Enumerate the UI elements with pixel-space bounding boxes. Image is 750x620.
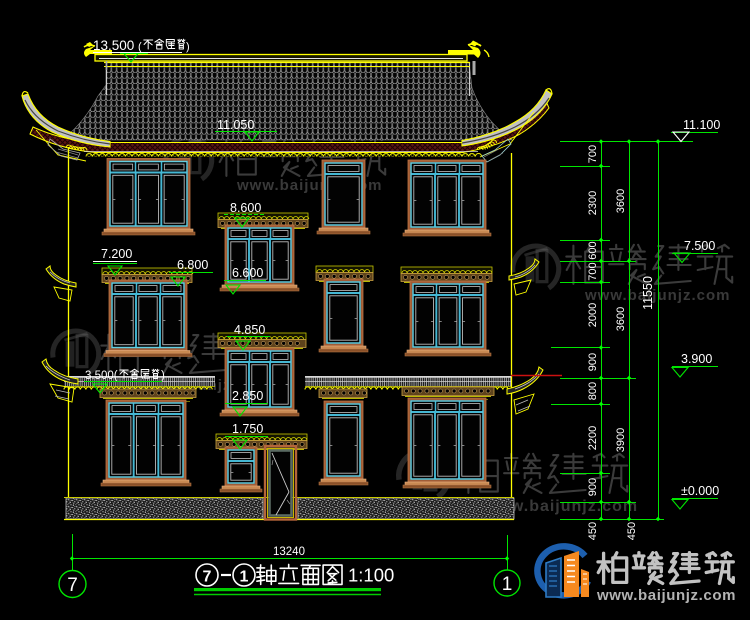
svg-text:(: ( [138, 41, 142, 53]
svg-text:600: 600 [587, 241, 599, 259]
svg-text:700: 700 [587, 262, 599, 280]
svg-text:2300: 2300 [587, 191, 599, 215]
svg-text:4.850: 4.850 [234, 323, 265, 337]
svg-text:3.500(: 3.500( [85, 370, 118, 382]
svg-text:1: 1 [240, 569, 249, 586]
svg-text:450: 450 [587, 522, 599, 540]
svg-text:3.900: 3.900 [681, 352, 712, 366]
svg-text:800: 800 [587, 382, 599, 400]
svg-text:www.baijunjz.com: www.baijunjz.com [584, 287, 730, 304]
svg-text:www.baijunjz.com: www.baijunjz.com [596, 587, 736, 604]
svg-text:1:100: 1:100 [348, 565, 394, 586]
svg-text:2000: 2000 [587, 303, 599, 327]
svg-text:2200: 2200 [587, 426, 599, 450]
svg-text:): ) [186, 41, 190, 53]
svg-text:13.500: 13.500 [93, 38, 134, 53]
svg-text:700: 700 [587, 145, 599, 163]
svg-text:8.600: 8.600 [230, 201, 261, 215]
svg-text:13240: 13240 [273, 546, 305, 558]
svg-text:±0.000: ±0.000 [681, 484, 719, 498]
svg-text:6.600: 6.600 [232, 266, 263, 280]
svg-text:7: 7 [67, 575, 78, 596]
svg-text:7: 7 [203, 569, 212, 586]
svg-text:900: 900 [587, 478, 599, 496]
svg-text:1: 1 [502, 574, 513, 595]
svg-text:3600: 3600 [615, 307, 627, 331]
svg-text:7.500: 7.500 [684, 239, 715, 253]
svg-text:2.850: 2.850 [232, 389, 263, 403]
svg-text:): ) [161, 370, 165, 382]
svg-text:1.750: 1.750 [232, 422, 263, 436]
svg-text:450: 450 [626, 522, 638, 540]
svg-text:11.100: 11.100 [683, 118, 720, 132]
svg-text:11550: 11550 [641, 276, 655, 310]
svg-text:3600: 3600 [615, 189, 627, 213]
svg-text:900: 900 [587, 353, 599, 371]
svg-text:11.050: 11.050 [217, 118, 254, 132]
svg-text:6.800: 6.800 [177, 258, 208, 272]
svg-text:3900: 3900 [615, 428, 627, 452]
svg-text:7.200: 7.200 [101, 247, 132, 261]
